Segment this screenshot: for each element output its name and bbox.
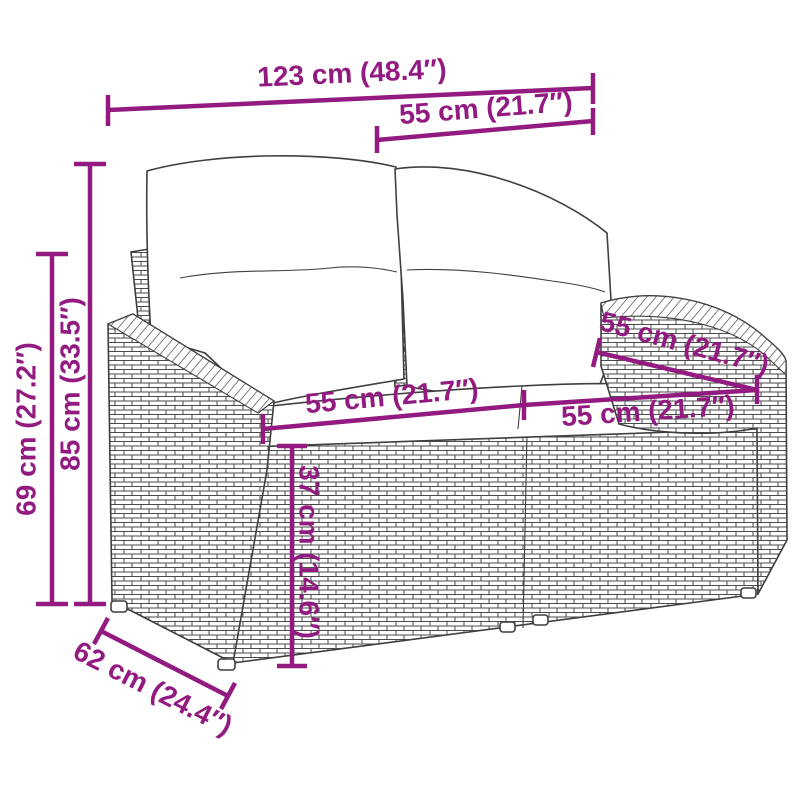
bench-foot xyxy=(741,588,756,598)
bench-foot xyxy=(533,615,548,625)
product-dimension-image: 123 cm (48.4″) 55 cm (21.7″) 85 cm (33.5… xyxy=(0,0,800,800)
dim-seat-height-label: 37 cm (14.6″) xyxy=(294,465,325,639)
back-cushion-right xyxy=(395,167,611,396)
bench-foot xyxy=(500,622,515,632)
bench-foot xyxy=(218,659,235,670)
bench-dimension-diagram: 123 cm (48.4″) 55 cm (21.7″) 85 cm (33.5… xyxy=(0,0,800,800)
dim-total-height-label: 85 cm (33.5″) xyxy=(54,297,85,471)
dim-total-width-label: 123 cm (48.4″) xyxy=(257,53,448,93)
dim-total-height: 85 cm (33.5″) xyxy=(54,164,106,604)
bench-foot xyxy=(111,601,127,612)
dim-armrest-height-label: 69 cm (27.2″) xyxy=(10,342,41,516)
